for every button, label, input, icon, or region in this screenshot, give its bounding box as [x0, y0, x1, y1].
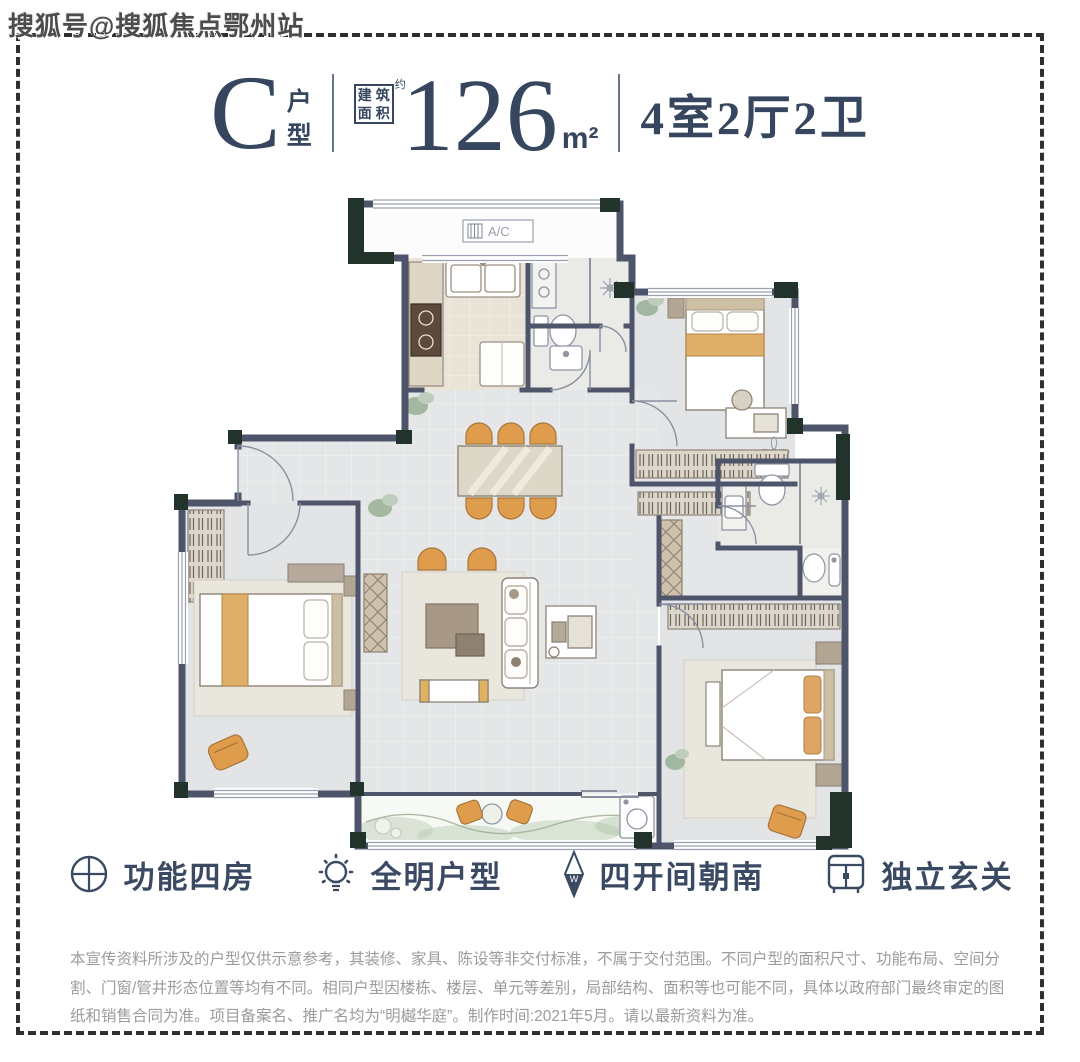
cabinet-icon: [823, 852, 869, 896]
ac-label: A/C: [488, 224, 510, 239]
area-unit: m²: [562, 122, 599, 156]
type-suffix-char: 户: [287, 86, 312, 120]
tv-desk: [546, 606, 596, 658]
floor-plan: A/C: [170, 196, 886, 854]
hall-cabinet: [661, 520, 682, 598]
washer: [620, 796, 654, 838]
feature-item: 功能四房: [67, 852, 256, 897]
feature-label: 功能四房: [124, 852, 256, 897]
ac-label-chip: A/C: [463, 220, 533, 242]
sofa: [502, 578, 538, 688]
feature-item: 全明户型: [314, 852, 503, 897]
disclaimer-text: 本宣传资料所涉及的户型仅供示意参考，其装修、家具、陈设等非交付标准，不属于交付范…: [70, 946, 1015, 1032]
type-suffix-char: 型: [287, 120, 312, 154]
feature-label: 四开间朝南: [600, 852, 765, 897]
svg-text:W: W: [569, 874, 578, 884]
bulb-icon: [314, 852, 358, 896]
master-closet: [668, 604, 840, 629]
area-group: 建 筑 面 积 约 126 m²: [354, 68, 599, 157]
watermark-text: 搜狐号@搜狐焦点鄂州站: [8, 6, 304, 43]
feature-label: 全明户型: [371, 852, 503, 897]
header-divider: [332, 74, 334, 152]
dresser: [288, 564, 344, 582]
bench: [420, 680, 488, 702]
area-value: 126: [402, 74, 558, 157]
circle-plus-icon: [67, 852, 111, 896]
type-letter: C: [210, 68, 281, 158]
feature-list: 功能四房 全明户型 W 四开间朝南 独立玄关: [0, 850, 1080, 898]
feature-label: 独立玄关: [882, 852, 1014, 897]
rooms-summary: 4室2厅2卫: [640, 79, 870, 148]
built-area-badge: 建 筑 面 积: [354, 84, 394, 124]
header-divider: [618, 74, 620, 152]
type-suffix: 户 型: [287, 86, 312, 154]
feature-item: 独立玄关: [823, 852, 1014, 897]
plan-header: C 户 型 建 筑 面 积 约 126 m² 4室2厅2卫: [0, 68, 1080, 158]
feature-item: W 四开间朝南: [561, 850, 765, 898]
area-approx-mark: 约: [395, 76, 406, 92]
dining-set: [458, 423, 562, 519]
foyer-cabinet: [364, 574, 387, 652]
compass-needle-icon: W: [561, 850, 587, 898]
